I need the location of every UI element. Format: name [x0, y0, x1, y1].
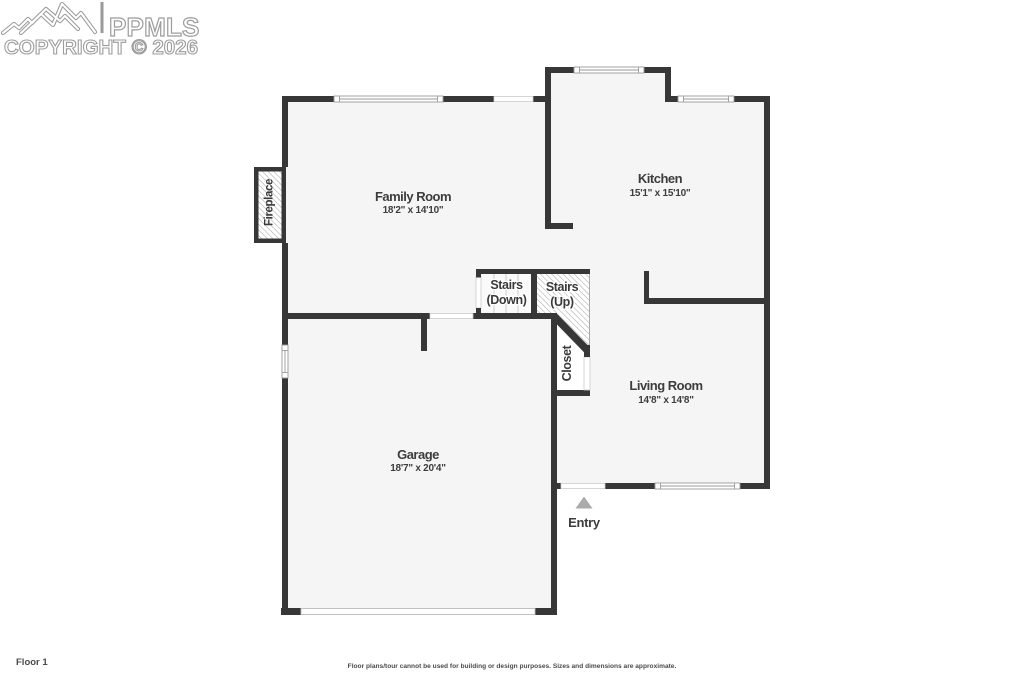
svg-text:Fireplace: Fireplace [264, 179, 276, 226]
svg-text:15'1" x 15'10": 15'1" x 15'10" [630, 188, 691, 199]
svg-text:Living Room: Living Room [629, 378, 702, 393]
svg-text:Floor 1: Floor 1 [16, 657, 48, 668]
svg-text:Entry: Entry [568, 515, 601, 530]
svg-text:(Up): (Up) [550, 295, 574, 309]
svg-text:COPYRIGHT © 2026: COPYRIGHT © 2026 [4, 36, 198, 59]
svg-text:Garage: Garage [397, 447, 439, 462]
svg-text:Stairs: Stairs [490, 278, 523, 292]
svg-text:(Down): (Down) [487, 293, 527, 307]
svg-text:14'8" x 14'8": 14'8" x 14'8" [638, 395, 694, 406]
svg-text:Family Room: Family Room [375, 189, 451, 204]
svg-text:18'7" x 20'4": 18'7" x 20'4" [390, 463, 446, 474]
svg-text:18'2" x 14'10": 18'2" x 14'10" [383, 205, 444, 216]
svg-text:Floor plans/tour cannot be use: Floor plans/tour cannot be used for buil… [348, 663, 677, 670]
svg-text:Closet: Closet [560, 344, 574, 381]
svg-text:Kitchen: Kitchen [638, 171, 683, 186]
svg-text:Stairs: Stairs [546, 280, 579, 294]
